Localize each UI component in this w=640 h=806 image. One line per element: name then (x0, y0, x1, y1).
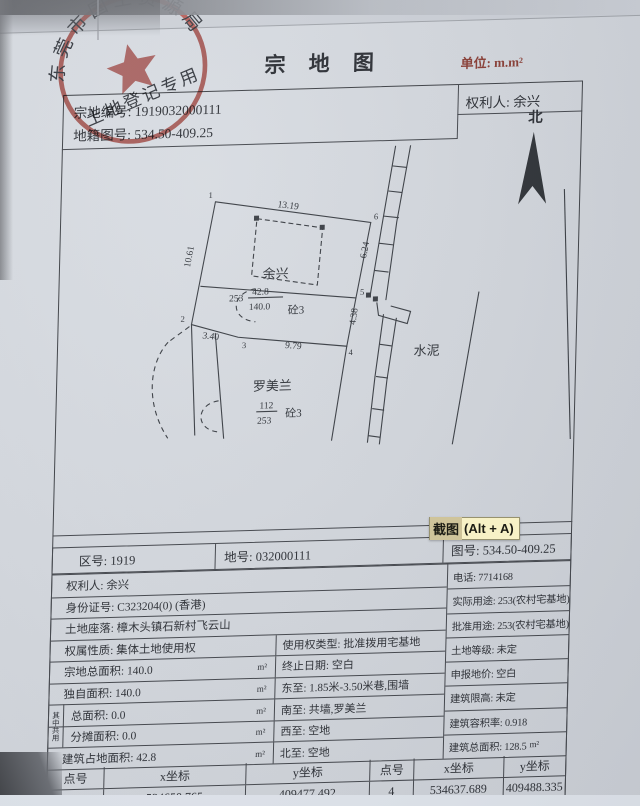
neighbor-structure-label: 砼3 (285, 406, 302, 419)
field-text: 权属性质: 集体土地使用权 (64, 639, 196, 659)
owner-zone-code: 253 (229, 294, 244, 304)
owner-fraction-denominator: 140.0 (249, 302, 271, 313)
dim-left: 10.61 (183, 245, 197, 268)
parcel-map: 13.19 10.61 6.24 4.38 3.40 9.79 1 2 3 4 … (53, 139, 580, 536)
unit-label: m² (257, 662, 267, 672)
point-2: 2 (181, 314, 185, 324)
dim-bottom-left: 3.40 (202, 331, 220, 343)
point-3: 3 (242, 340, 246, 350)
surface-label: 水泥 (413, 343, 439, 359)
north-label: 北 (528, 106, 543, 127)
screenshot-shortcut: (Alt + A) (464, 521, 514, 536)
paper-sheet: 宗 地 图 单位: m.m² 宗地编号: 1919032000111 地籍图号:… (0, 0, 640, 806)
screen-bottom-strip (0, 795, 640, 806)
point-5: 5 (360, 287, 364, 297)
point-1: 1 (209, 190, 213, 200)
field-phone: 电话: 7714168 (448, 561, 571, 589)
screenshot-tooltip-button[interactable]: 截图 (Alt + A) (429, 517, 520, 540)
owner-structure-label: 砼3 (288, 303, 305, 316)
neighbor-fraction-denominator: 253 (257, 416, 272, 426)
field-text: 总面积: 0.0 (71, 706, 126, 724)
field-height-limit: 建筑限高: 未定 (445, 682, 568, 710)
col-x-coordinate: x坐标 (103, 763, 245, 788)
field-declared-price: 申报地价: 空白 (445, 658, 568, 686)
point-6: 6 (374, 211, 378, 221)
unit-label: m² (257, 684, 267, 694)
attribute-table-right: 电话: 7714168 实际用途: 253(农村宅基地) 批准用途: 253(农… (443, 561, 571, 759)
col-y-coordinate: y坐标 (503, 754, 565, 777)
attribute-table: 权利人: 余兴 身份证号: C323204(0) (香港) 土地座落: 樟木头镇… (47, 560, 572, 771)
col-x-coordinate: x坐标 (413, 756, 503, 780)
dim-right-lower: 4.38 (348, 308, 360, 326)
attribute-table-left: 权利人: 余兴 身份证号: C323204(0) (香港) 土地座落: 樟木头镇… (48, 565, 448, 770)
field-text: 宗地总面积: 140.0 (64, 662, 153, 680)
photo-left-shadow (0, 0, 13, 280)
paper-crease (97, 0, 99, 40)
col-point-number: 点号 (369, 759, 413, 781)
field-actual-use: 实际用途: 253(农村宅基地) (447, 585, 570, 613)
unit-label: m² (529, 739, 539, 749)
photo-corner-shadow (0, 0, 160, 36)
unit-label: m² (256, 705, 266, 715)
field-text: 分摊面积: 0.0 (70, 727, 136, 745)
scanned-parcel-document: 宗 地 图 单位: m.m² 宗地编号: 1919032000111 地籍图号:… (0, 0, 640, 806)
shared-use-vertical-label: 其中共用 (48, 705, 64, 749)
field-text: 建筑占地面积: 42.8 (62, 748, 157, 767)
unit-label: m² (255, 748, 265, 758)
field-land-grade: 土地等级: 未定 (446, 634, 569, 662)
screenshot-label: 截图 (430, 517, 462, 540)
field-plot-ratio: 建筑容积率: 0.918 (444, 707, 567, 735)
point-4: 4 (349, 347, 354, 357)
field-approved-use: 批准用途: 253(农村宅基地) (447, 610, 570, 638)
unit-note: 单位: m.m² (460, 51, 523, 72)
dim-right-upper: 6.24 (359, 241, 372, 259)
unit-label: m² (256, 727, 266, 737)
owner-fraction-numerator: 42.8 (252, 287, 269, 297)
dim-bottom: 9.79 (284, 341, 302, 352)
owner-label: 余兴 (262, 266, 288, 282)
neighbor-label: 罗美兰 (253, 378, 292, 394)
field-text: 独自面积: 140.0 (63, 684, 141, 702)
col-y-coordinate: y坐标 (245, 760, 369, 784)
neighbor-fraction-numerator: 112 (259, 401, 273, 411)
field-text: 建筑总面积: 128.5 (449, 737, 527, 754)
district-number: 区号: 1919 (53, 544, 216, 574)
